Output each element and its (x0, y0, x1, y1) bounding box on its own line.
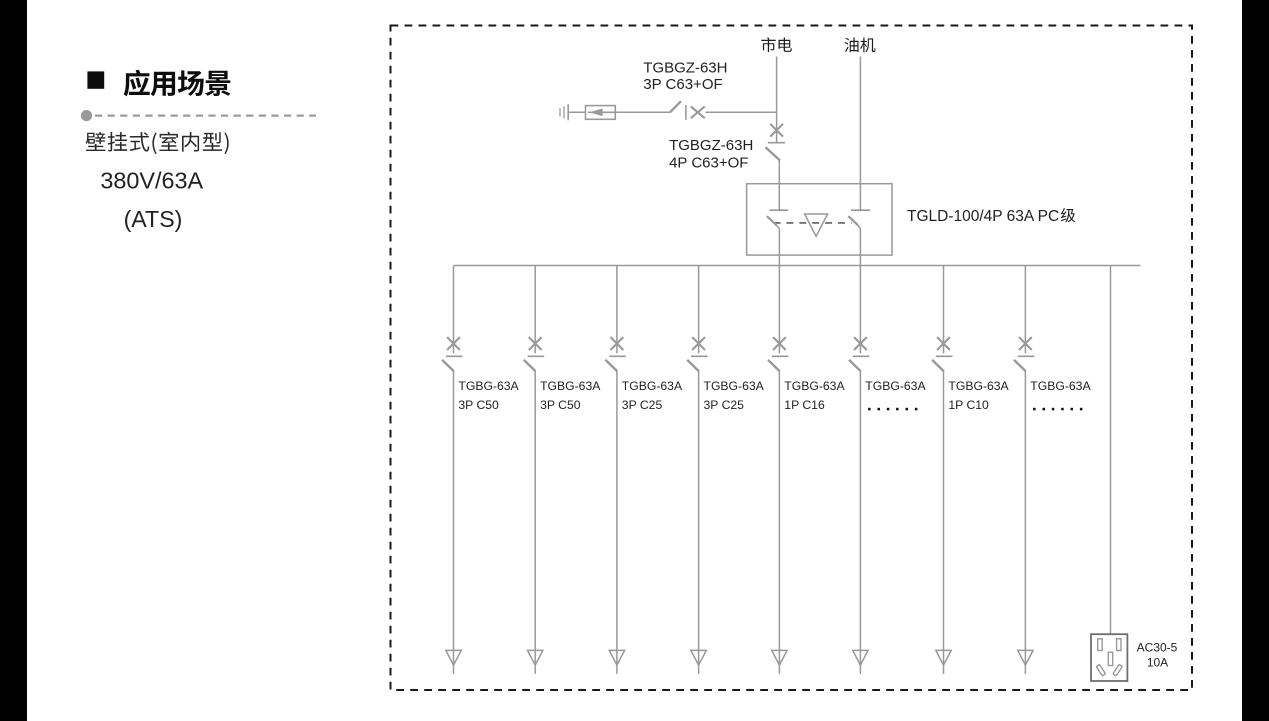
svg-text:3P C50: 3P C50 (540, 398, 581, 412)
svg-text:TGBG-63A: TGBG-63A (704, 379, 765, 393)
svg-text:TGBG-63A: TGBG-63A (784, 379, 845, 393)
svg-text:TGBG-63A: TGBG-63A (540, 379, 601, 393)
svg-text:1P C10: 1P C10 (948, 398, 989, 412)
svg-text:3P C50: 3P C50 (458, 398, 499, 412)
svg-text:(ATS): (ATS) (124, 206, 183, 232)
svg-text:TGBGZ-63H: TGBGZ-63H (643, 60, 727, 77)
svg-text:10A: 10A (1147, 656, 1168, 670)
svg-text:TGBGZ-63H: TGBGZ-63H (669, 137, 753, 154)
svg-text:TGLD-100/4P 63A PC: TGLD-100/4P 63A PC (907, 208, 1059, 225)
svg-text:TGBG-63A: TGBG-63A (948, 379, 1009, 393)
svg-text:3P C63+OF: 3P C63+OF (643, 76, 722, 93)
svg-text:380V/63A: 380V/63A (100, 168, 203, 194)
svg-text:TGBG-63A: TGBG-63A (1030, 379, 1091, 393)
svg-text:TGBG-63A: TGBG-63A (622, 379, 683, 393)
svg-text:TGBG-63A: TGBG-63A (865, 379, 926, 393)
svg-text:3P C25: 3P C25 (704, 398, 745, 412)
svg-text:1P C16: 1P C16 (784, 398, 825, 412)
svg-text:3P C25: 3P C25 (622, 398, 663, 412)
svg-text:TGBG-63A: TGBG-63A (458, 379, 519, 393)
svg-text:4P C63+OF: 4P C63+OF (669, 154, 748, 171)
svg-text:AC30-5: AC30-5 (1137, 641, 1178, 655)
